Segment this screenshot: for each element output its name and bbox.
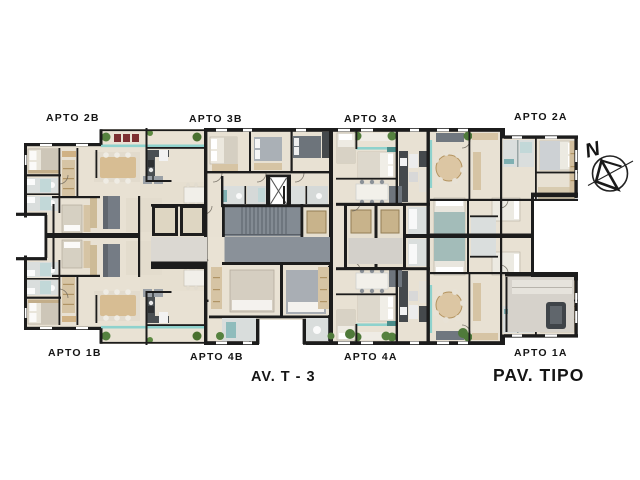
svg-text:APTO 2B: APTO 2B — [46, 112, 100, 124]
svg-text:APTO 1A: APTO 1A — [514, 347, 568, 359]
svg-text:APTO 1B: APTO 1B — [48, 347, 102, 359]
svg-text:APTO 2A: APTO 2A — [514, 111, 568, 123]
svg-text:APTO 3B: APTO 3B — [189, 113, 243, 125]
svg-text:N: N — [583, 138, 603, 163]
svg-text:AV. T - 3: AV. T - 3 — [251, 369, 316, 385]
svg-text:APTO 3A: APTO 3A — [344, 113, 398, 125]
svg-text:APTO 4A: APTO 4A — [344, 351, 398, 363]
svg-text:APTO 4B: APTO 4B — [190, 351, 244, 363]
svg-text:PAV. TIPO: PAV. TIPO — [493, 365, 584, 385]
